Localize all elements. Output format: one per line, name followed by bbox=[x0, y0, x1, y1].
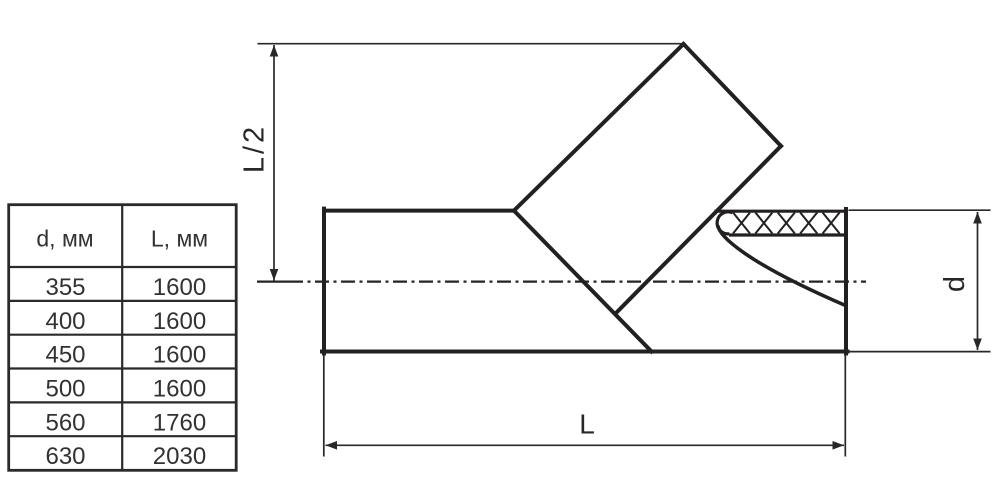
svg-text:L, мм: L, мм bbox=[151, 226, 208, 252]
svg-text:355: 355 bbox=[45, 274, 85, 301]
svg-text:630: 630 bbox=[45, 443, 85, 470]
svg-text:2030: 2030 bbox=[153, 443, 206, 470]
svg-text:400: 400 bbox=[45, 308, 85, 335]
svg-text:1760: 1760 bbox=[153, 409, 206, 436]
svg-text:500: 500 bbox=[45, 376, 85, 403]
svg-text:1600: 1600 bbox=[153, 342, 206, 369]
svg-text:d, мм: d, мм bbox=[36, 226, 93, 252]
svg-text:1600: 1600 bbox=[153, 308, 206, 335]
svg-text:L/2: L/2 bbox=[239, 124, 271, 173]
svg-text:1600: 1600 bbox=[153, 274, 206, 301]
svg-text:1600: 1600 bbox=[153, 376, 206, 403]
svg-text:L: L bbox=[579, 409, 595, 440]
svg-text:d: d bbox=[939, 276, 971, 292]
svg-text:560: 560 bbox=[45, 409, 85, 436]
svg-text:450: 450 bbox=[45, 342, 85, 369]
